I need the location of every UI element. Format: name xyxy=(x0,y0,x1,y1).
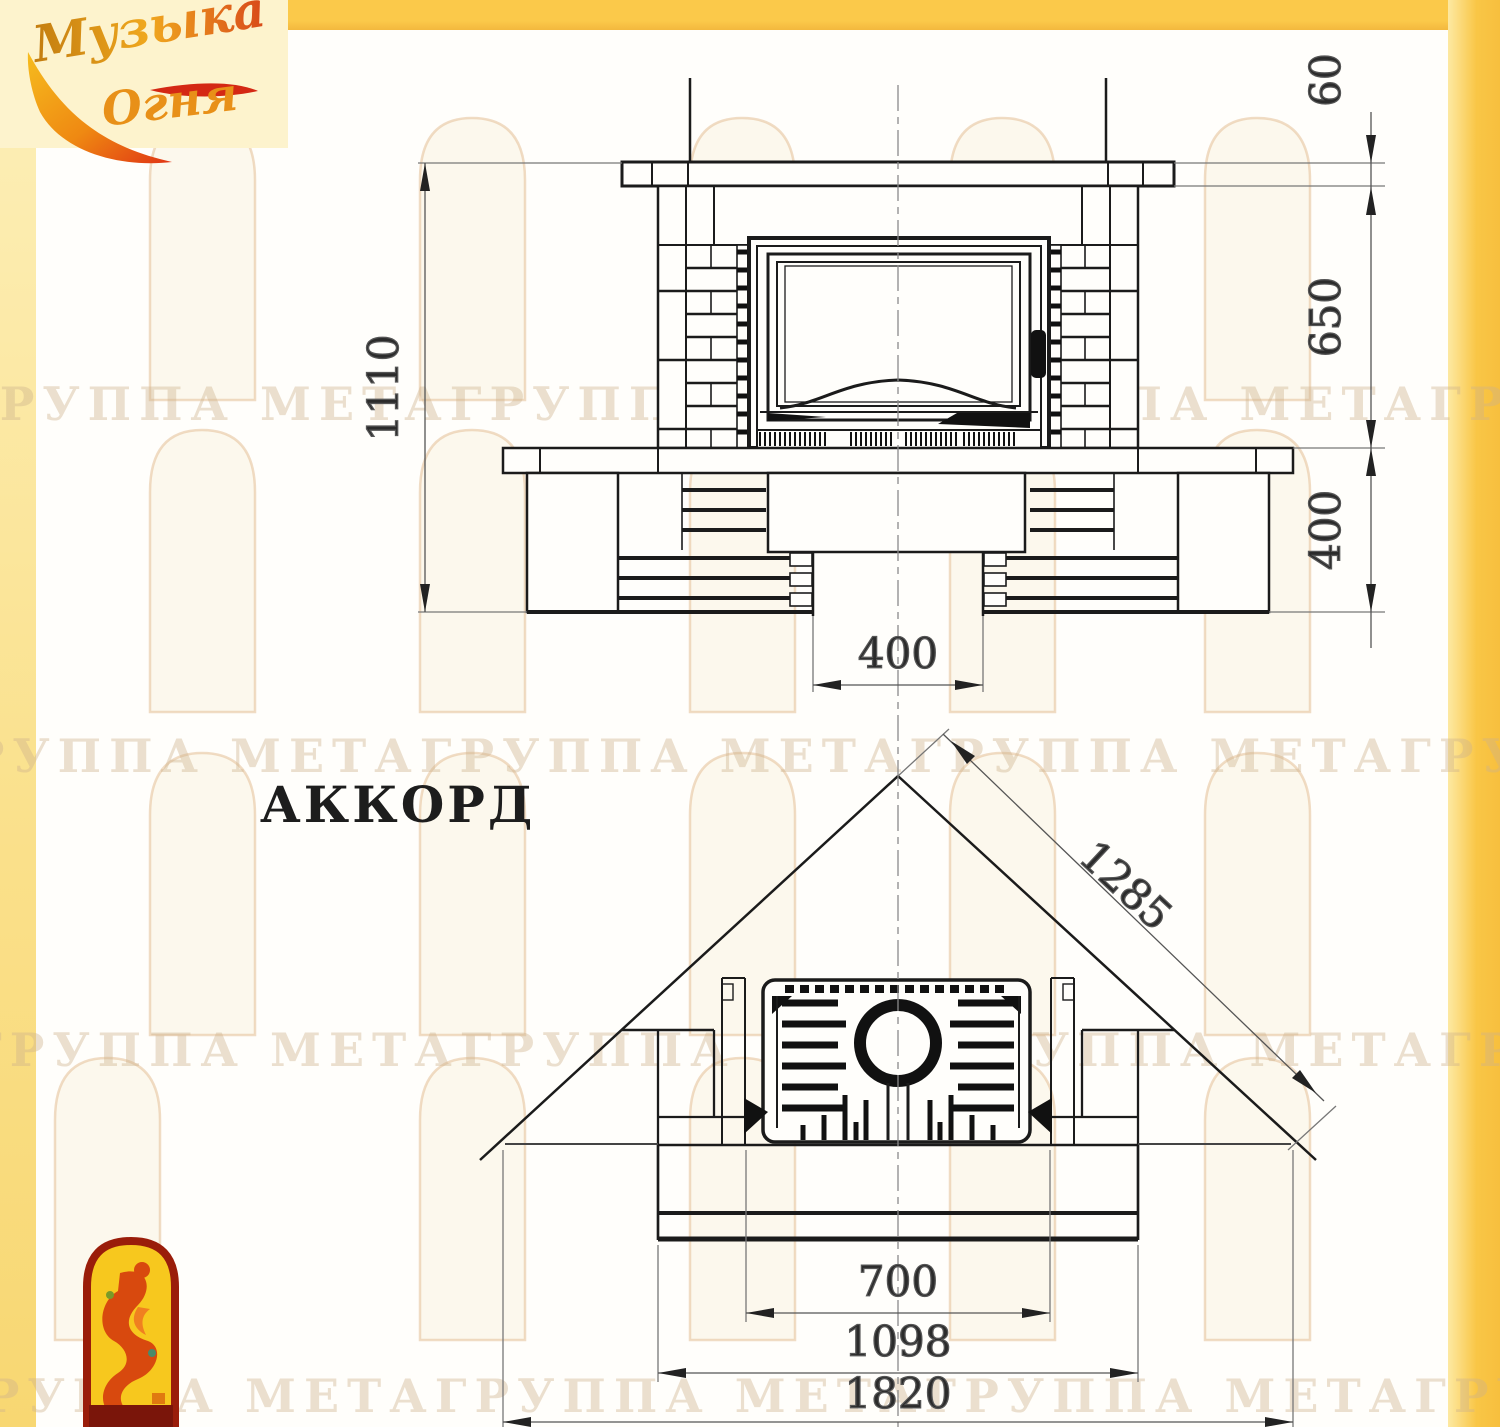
side-strip-right xyxy=(1051,978,1074,1145)
technical-drawing: 1110 60 650 400 400 xyxy=(0,0,1500,1427)
dim-label-1820: 1820 xyxy=(845,1369,952,1418)
flame-figure-emblem xyxy=(60,1225,200,1427)
course-end-cap xyxy=(790,553,812,566)
dim-label-60: 60 xyxy=(1301,53,1350,106)
base-center-block xyxy=(768,473,1025,552)
course-end-cap xyxy=(790,573,812,586)
side-block-left xyxy=(658,978,745,1240)
emblem-base-band xyxy=(89,1405,173,1427)
emblem-dot-green xyxy=(106,1291,114,1299)
drawing-sheet: ГРУППА МЕТАГРУППА МЕТАГРУППА МЕТАГРУППА … xyxy=(0,0,1500,1427)
emblem-dot-orange xyxy=(152,1393,165,1404)
dim-label-400-height: 400 xyxy=(1301,490,1350,570)
side-notch-left xyxy=(722,984,733,1000)
model-name-title: АККОРД xyxy=(260,775,535,834)
course-end-cap xyxy=(984,573,1006,586)
door-handle xyxy=(1031,330,1046,378)
side-strip-left xyxy=(722,978,745,1145)
dim-label-700: 700 xyxy=(858,1257,938,1306)
emblem-dot-teal xyxy=(148,1349,156,1357)
course-end-cap xyxy=(790,593,812,606)
base-end-block-right xyxy=(1178,473,1269,612)
dim-label-1110: 1110 xyxy=(359,335,408,442)
side-block-left-lines xyxy=(658,1030,745,1240)
course-end-cap xyxy=(984,553,1006,566)
dim-label-1098: 1098 xyxy=(845,1317,952,1366)
dim-label-400-width: 400 xyxy=(858,629,938,678)
dim-label-650: 650 xyxy=(1301,277,1350,357)
side-notch-right xyxy=(1063,984,1074,1000)
side-block-right-lines xyxy=(1051,1030,1138,1240)
side-block-right xyxy=(1051,978,1138,1240)
firebox-door xyxy=(749,238,1049,448)
base-end-block-left xyxy=(527,473,618,612)
dim-label-1285: 1285 xyxy=(1070,831,1182,940)
course-end-cap xyxy=(984,593,1006,606)
